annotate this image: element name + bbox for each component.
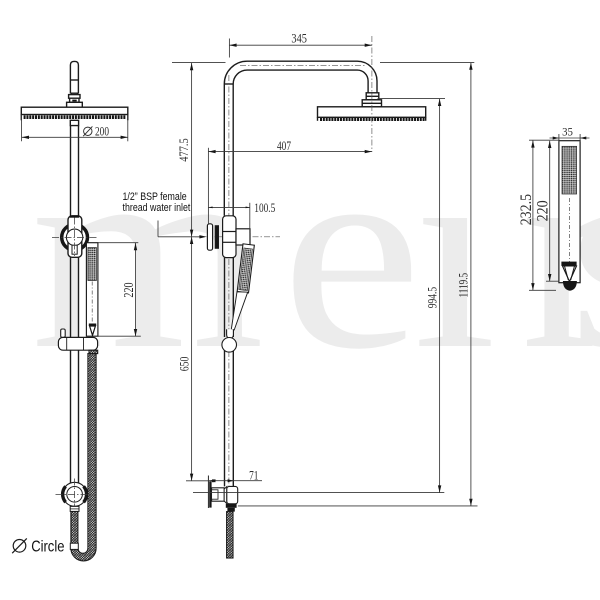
svg-text:345: 345 — [291, 32, 307, 46]
svg-text:35: 35 — [562, 126, 573, 139]
svg-text:thread water inlet: thread water inlet — [123, 202, 191, 214]
svg-text:650: 650 — [178, 356, 192, 371]
svg-text:1119.5: 1119.5 — [457, 273, 471, 298]
svg-text:407: 407 — [277, 139, 291, 153]
svg-text:Circle: Circle — [31, 538, 64, 555]
svg-text:220: 220 — [121, 282, 137, 297]
svg-text:477.5: 477.5 — [177, 138, 191, 161]
svg-text:232.5: 232.5 — [518, 194, 535, 225]
svg-text:994.5: 994.5 — [426, 287, 440, 309]
svg-text:e: e — [281, 97, 422, 407]
svg-text:71: 71 — [249, 469, 258, 483]
svg-text:ı: ı — [413, 98, 496, 407]
svg-text:200: 200 — [95, 125, 109, 139]
svg-text:220: 220 — [535, 200, 552, 221]
svg-text:100.5: 100.5 — [254, 202, 275, 216]
